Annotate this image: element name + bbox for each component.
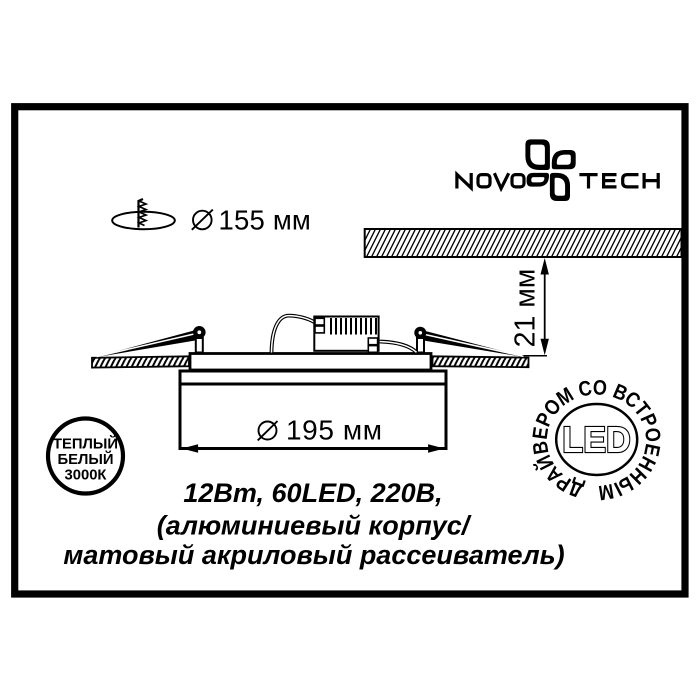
svg-text:195 мм: 195 мм xyxy=(286,415,383,446)
svg-text:21 мм: 21 мм xyxy=(510,269,542,348)
svg-text:БЕЛЫЙ: БЕЛЫЙ xyxy=(57,450,113,468)
svg-text:ТЕПЛЫЙ: ТЕПЛЫЙ xyxy=(53,434,118,452)
svg-text:155 мм: 155 мм xyxy=(219,204,312,235)
svg-text:матовый акриловый рассеиватель: матовый акриловый рассеиватель) xyxy=(63,540,564,570)
svg-text:LED: LED xyxy=(562,420,630,460)
svg-text:(алюминиевый корпус/: (алюминиевый корпус/ xyxy=(157,511,472,541)
svg-text:3000К: 3000К xyxy=(65,468,108,484)
svg-text:12Вт, 60LED, 220В,: 12Вт, 60LED, 220В, xyxy=(183,478,442,508)
